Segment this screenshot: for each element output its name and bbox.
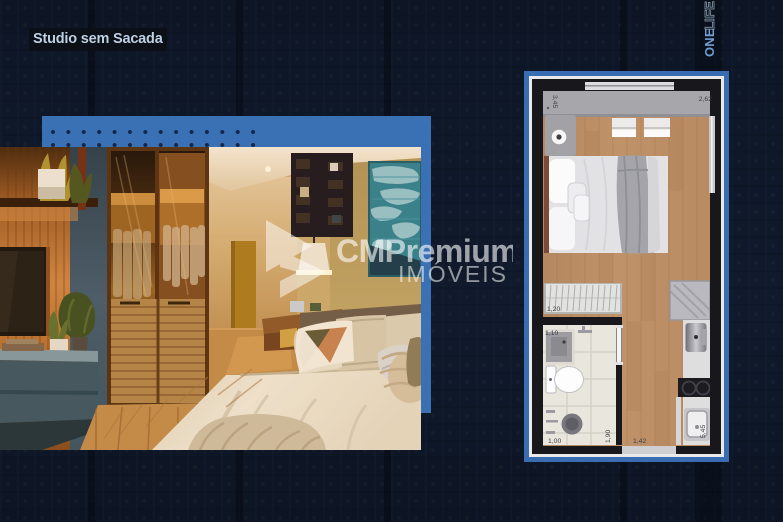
svg-text:1,42: 1,42 [633, 438, 646, 445]
svg-text:ONE: ONE [702, 28, 717, 57]
svg-text:2,62: 2,62 [699, 96, 712, 103]
svg-text:IMÓVEIS: IMÓVEIS [398, 261, 508, 287]
svg-text:1,90: 1,90 [605, 430, 612, 443]
svg-text:5,45: 5,45 [700, 425, 707, 438]
svg-text:3,45: 3,45 [551, 95, 558, 108]
svg-text:1,20: 1,20 [547, 306, 560, 313]
svg-text:LIFE: LIFE [702, 1, 717, 30]
svg-text:1,00: 1,00 [548, 438, 561, 445]
svg-text:1,10: 1,10 [545, 330, 558, 337]
